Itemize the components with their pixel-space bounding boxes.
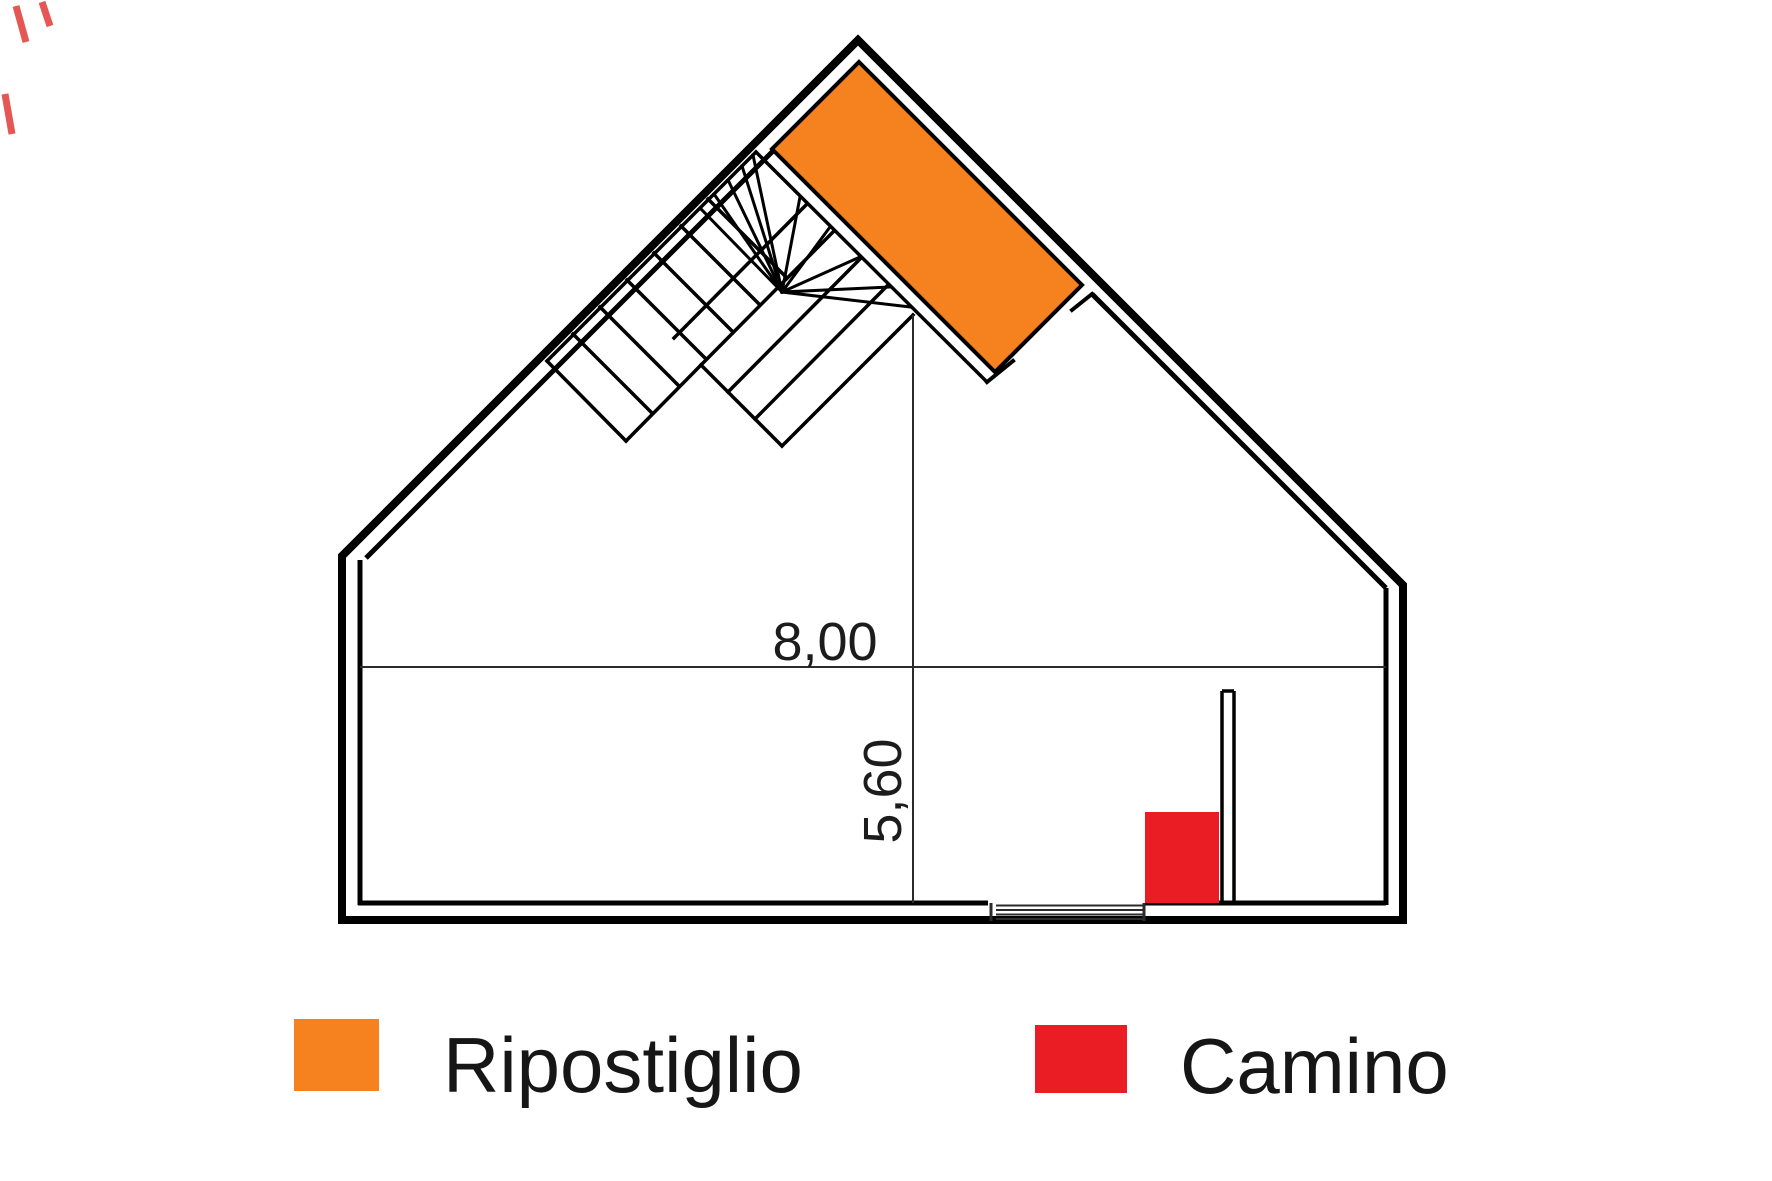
legend-swatch-ripostiglio bbox=[294, 1019, 379, 1091]
camino-fireplace bbox=[1145, 812, 1219, 903]
legend-swatch-camino bbox=[1035, 1025, 1127, 1093]
legend-label-ripostiglio: Ripostiglio bbox=[443, 1021, 803, 1109]
dimension-height-label: 5,60 bbox=[853, 738, 913, 843]
legend-label-camino: Camino bbox=[1180, 1022, 1449, 1110]
dimension-width-label: 8,00 bbox=[772, 612, 877, 672]
floor-plan: 8,00 5,60 Ripostiglio Camino bbox=[0, 0, 1772, 1181]
floor-plan-page: 8,00 5,60 Ripostiglio Camino bbox=[0, 0, 1772, 1181]
